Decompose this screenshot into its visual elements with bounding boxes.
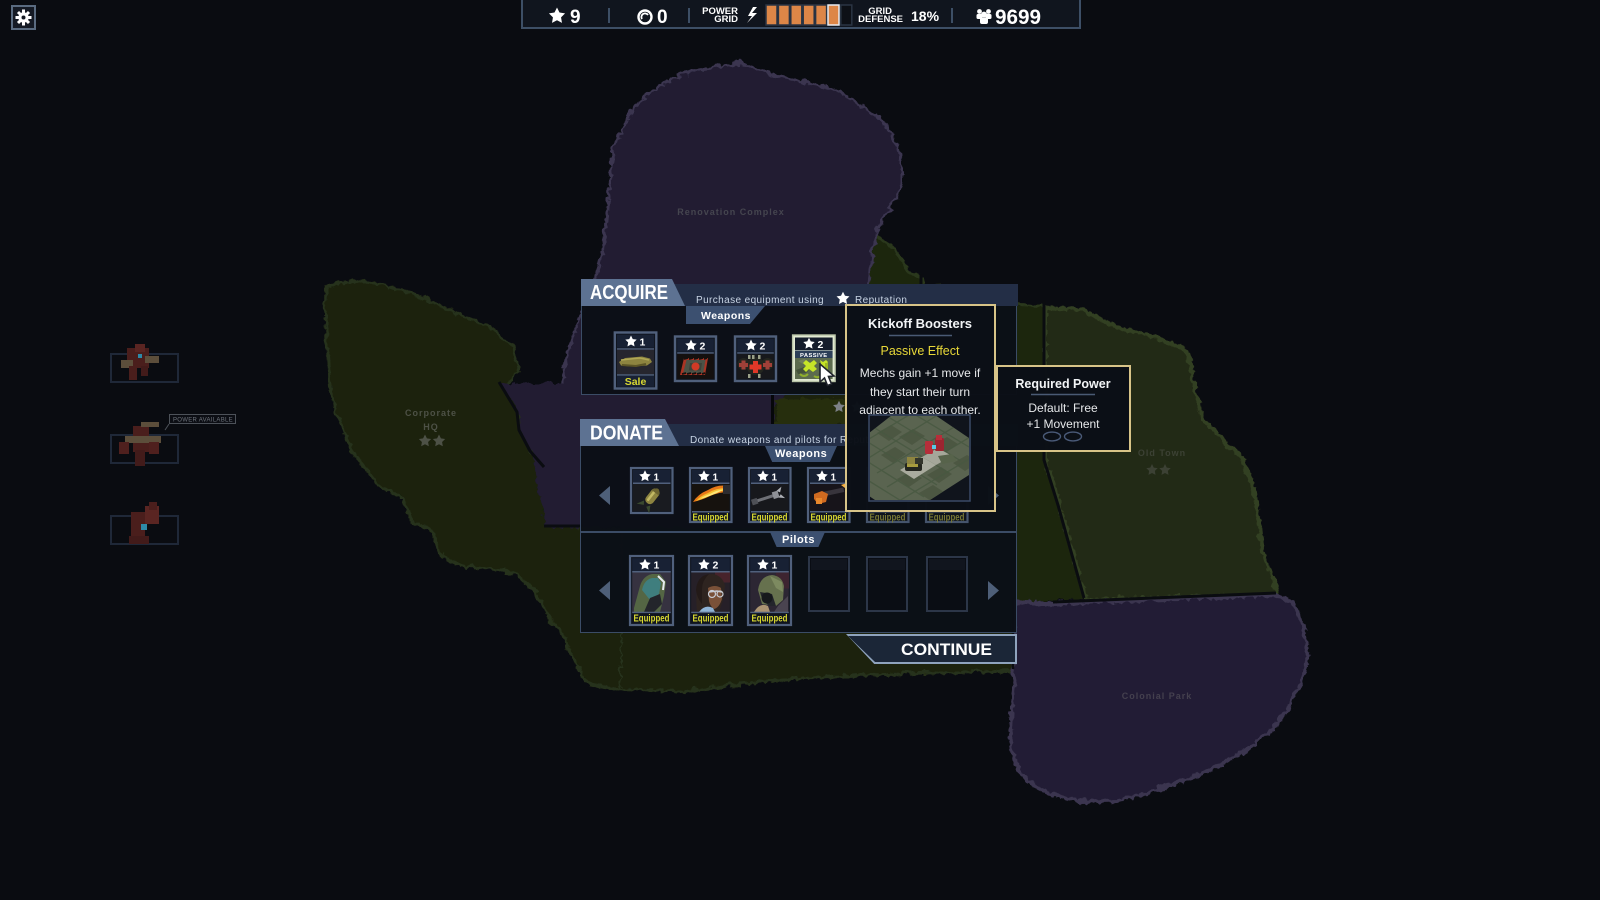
svg-text:PASSIVE: PASSIVE <box>800 353 828 359</box>
svg-text:1: 1 <box>713 472 719 483</box>
svg-text:Sale: Sale <box>625 376 647 388</box>
svg-text:Default: Free: Default: Free <box>1028 401 1098 415</box>
svg-text:Equipped: Equipped <box>870 513 906 524</box>
svg-text:Equipped: Equipped <box>811 513 847 524</box>
svg-text:they start their turn: they start their turn <box>870 385 970 399</box>
svg-text:POWER AVAILABLE: POWER AVAILABLE <box>173 418 233 424</box>
svg-text:9699: 9699 <box>995 6 1041 29</box>
svg-text:1: 1 <box>772 560 778 572</box>
svg-text:Colonial Park: Colonial Park <box>1122 691 1193 701</box>
svg-text:1: 1 <box>831 472 837 483</box>
svg-text:1: 1 <box>640 337 646 349</box>
svg-text:Required Power: Required Power <box>1015 377 1110 391</box>
svg-text:0: 0 <box>657 7 668 28</box>
svg-text:Equipped: Equipped <box>634 614 670 625</box>
svg-text:Equipped: Equipped <box>929 513 965 524</box>
svg-text:Equipped: Equipped <box>693 614 729 625</box>
svg-text:Purchase equipment using: Purchase equipment using <box>696 295 824 306</box>
svg-text:18%: 18% <box>911 8 940 24</box>
svg-text:Passive Effect: Passive Effect <box>881 344 961 358</box>
svg-text:1: 1 <box>654 560 660 572</box>
svg-text:Mechs gain +1 move if: Mechs gain +1 move if <box>860 366 981 380</box>
svg-text:CONTINUE: CONTINUE <box>901 640 992 659</box>
svg-text:DEFENSE: DEFENSE <box>858 14 903 25</box>
svg-text:Equipped: Equipped <box>693 513 729 524</box>
svg-text:Kickoff Boosters: Kickoff Boosters <box>868 316 972 331</box>
svg-text:GRID: GRID <box>714 14 738 25</box>
svg-text:DONATE: DONATE <box>590 423 663 445</box>
svg-text:HQ: HQ <box>423 422 439 432</box>
svg-text:9: 9 <box>570 7 581 28</box>
svg-text:+1 Movement: +1 Movement <box>1026 417 1100 431</box>
svg-text:1: 1 <box>772 472 778 483</box>
svg-text:Corporate: Corporate <box>405 408 457 418</box>
svg-text:Equipped: Equipped <box>752 614 788 625</box>
svg-text:ACQUIRE: ACQUIRE <box>590 282 668 304</box>
svg-text:2: 2 <box>818 339 824 351</box>
svg-text:2: 2 <box>760 341 766 353</box>
svg-text:Renovation Complex: Renovation Complex <box>677 207 785 217</box>
svg-text:2: 2 <box>713 560 719 572</box>
svg-text:1: 1 <box>654 472 660 483</box>
svg-text:Equipped: Equipped <box>752 513 788 524</box>
svg-text:2: 2 <box>700 341 706 353</box>
svg-text:Old Town: Old Town <box>1138 448 1186 458</box>
